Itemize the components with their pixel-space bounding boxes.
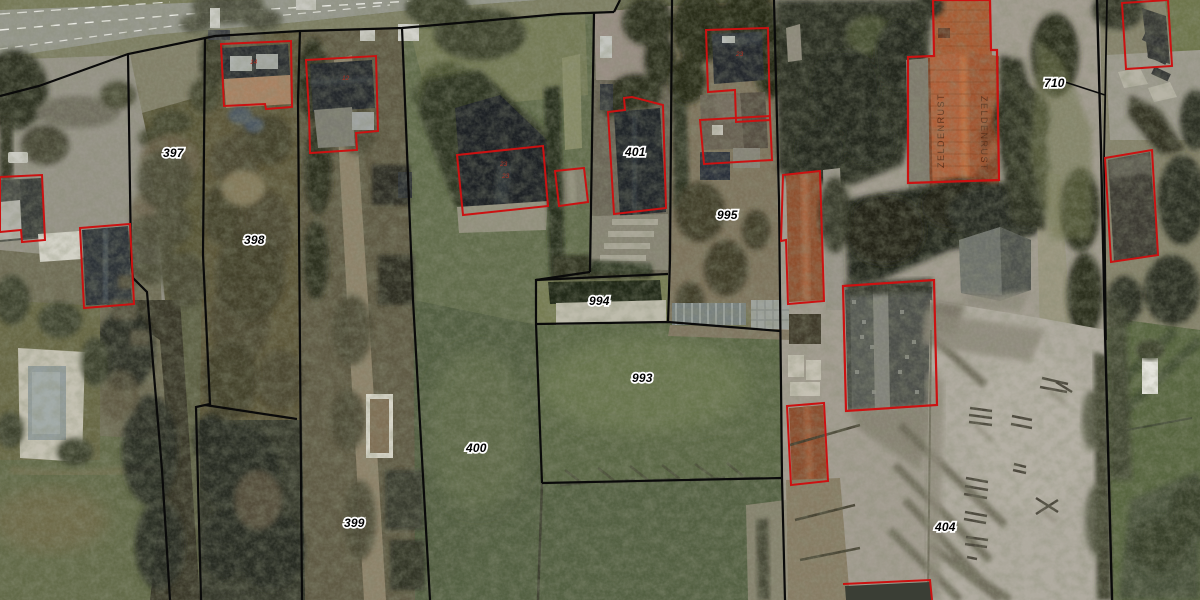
svg-text:23: 23 <box>735 51 744 58</box>
svg-text:12: 12 <box>342 75 350 82</box>
svg-text:398: 398 <box>244 233 265 247</box>
svg-text:400: 400 <box>465 441 487 455</box>
svg-text:995: 995 <box>717 208 738 222</box>
svg-text:401: 401 <box>624 145 646 159</box>
svg-text:994: 994 <box>589 294 610 308</box>
svg-text:710: 710 <box>1044 76 1065 90</box>
svg-text:399: 399 <box>344 516 365 530</box>
svg-text:14: 14 <box>250 59 258 66</box>
svg-text:993: 993 <box>632 371 653 385</box>
svg-text:404: 404 <box>934 520 956 534</box>
svg-text:23: 23 <box>499 161 508 168</box>
svg-text:397: 397 <box>163 146 185 160</box>
svg-text:23: 23 <box>501 173 510 180</box>
